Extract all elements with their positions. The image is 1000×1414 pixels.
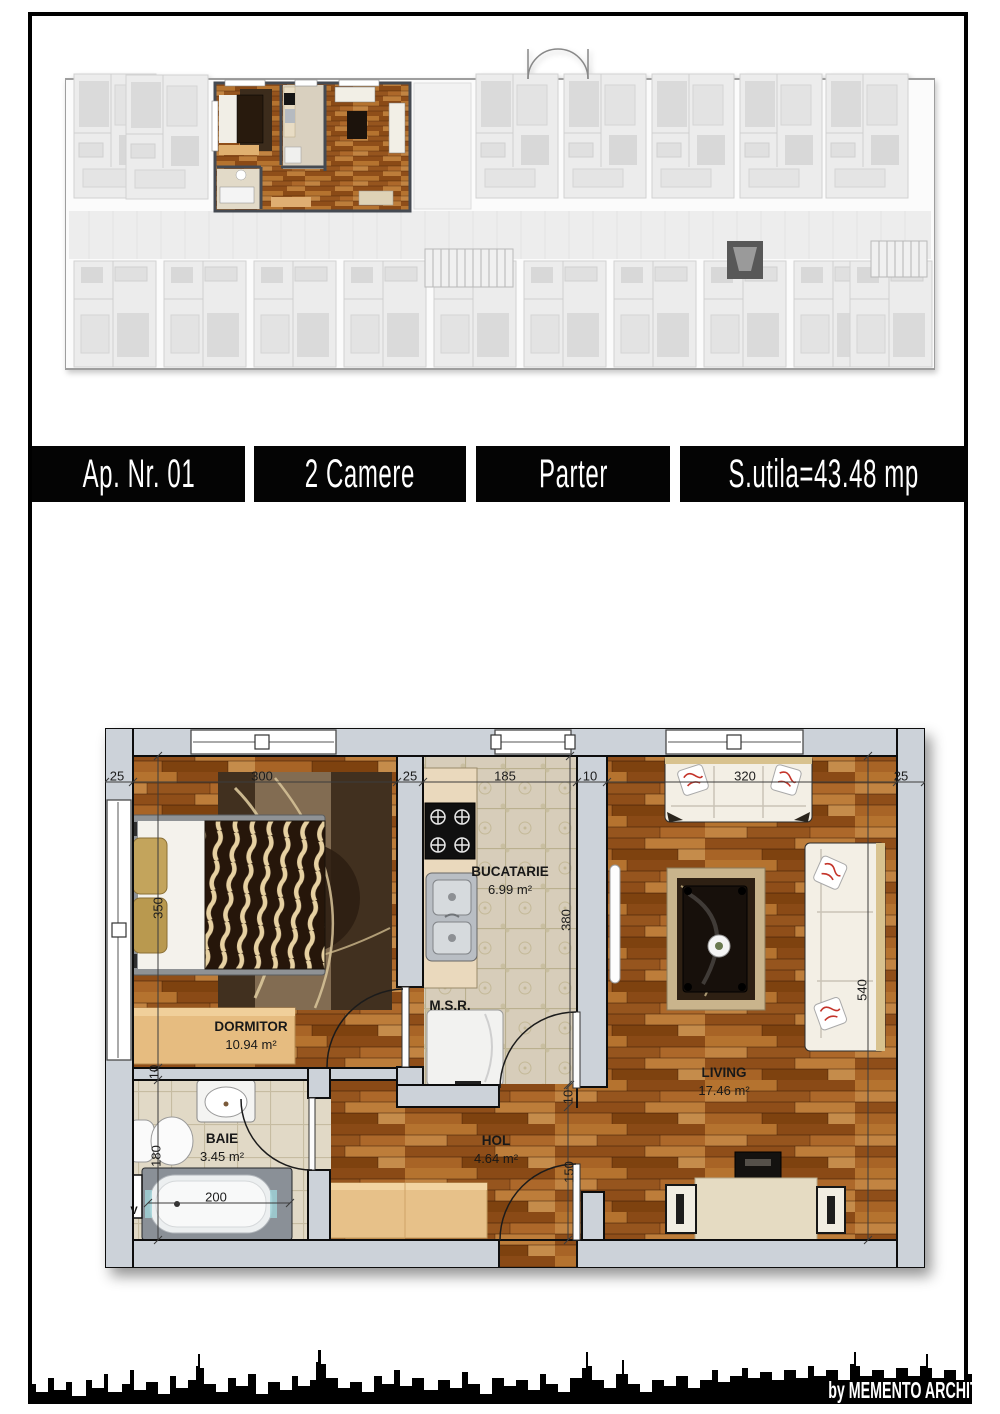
floor-plan-page: Ap. Nr. 01 2 Camere Parter S.utila=43.48… — [0, 0, 1000, 1414]
toilet — [128, 1117, 193, 1165]
banner-apartment-number-label: Ap. Nr. 01 — [82, 452, 195, 497]
kitchen-sink — [426, 873, 477, 961]
building-overview-plan — [65, 40, 935, 376]
apartment-detail-plan — [105, 728, 925, 1268]
stove — [425, 803, 475, 859]
banner-room-count-label: 2 Camere — [305, 452, 415, 497]
banner-apartment-number: Ap. Nr. 01 — [32, 446, 245, 502]
highlighted-apartment — [212, 80, 410, 211]
sofa-top — [665, 755, 812, 822]
banner-usable-area-label: S.utila=43.48 mp — [729, 452, 919, 497]
open-door-leaf-living — [610, 865, 620, 983]
sofa-right — [805, 843, 885, 1051]
elevator — [727, 241, 763, 279]
hallway-wardrobe — [323, 1183, 487, 1238]
banner-floor-level: Parter — [476, 446, 670, 502]
lobby — [414, 83, 471, 209]
coffee-table-set — [667, 868, 765, 1010]
double-bed — [132, 815, 325, 975]
entrance-opening — [499, 1241, 577, 1267]
bedroom-door-opening — [396, 987, 424, 1067]
bathtub — [142, 1168, 292, 1240]
bedroom-bench — [133, 1008, 295, 1064]
washing-machine — [427, 1010, 503, 1086]
banner-usable-area: S.utila=43.48 mp — [680, 446, 968, 502]
studio-credit: by MEMENTO ARCHITECTURE — [700, 1377, 966, 1404]
studio-credit-text: by MEMENTO ARCHITECTURE — [828, 1377, 1000, 1404]
banner-room-count: 2 Camere — [254, 446, 466, 502]
banner-floor-level-label: Parter — [539, 452, 608, 497]
